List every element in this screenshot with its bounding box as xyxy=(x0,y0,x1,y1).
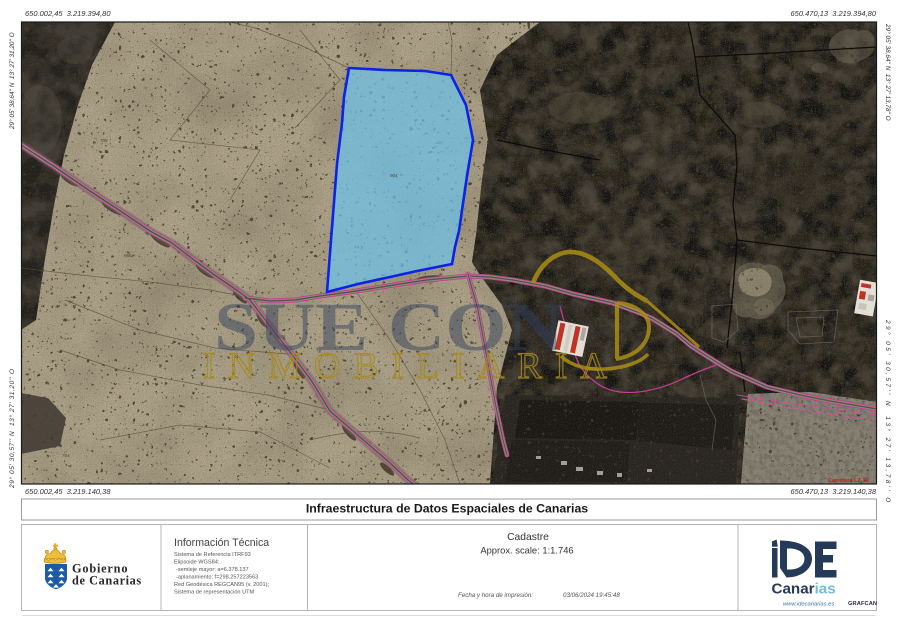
svg-text:706: 706 xyxy=(100,138,108,143)
svg-text:Cadastre: Cadastre xyxy=(507,532,549,543)
svg-text:29° 05' 30,57'' N 13° 27' 13,: 29° 05' 30,57'' N 13° 27' 13,78'' O xyxy=(884,319,892,505)
svg-text:Sistema de representación UTM: Sistema de representación UTM xyxy=(174,590,255,596)
svg-text:Fecha y hora de impresión:: Fecha y hora de impresión: xyxy=(458,592,533,599)
svg-text:GRAFCAN: GRAFCAN xyxy=(848,601,877,607)
svg-text:650.470,13 3.219.394,80: 650.470,13 3.219.394,80 xyxy=(791,9,877,18)
svg-text:-semieje mayor: a=6.378.137: -semieje mayor: a=6.378.137 xyxy=(176,567,249,573)
svg-text:Red Geodésica REGCAN95 (v. 200: Red Geodésica REGCAN95 (v. 2001); xyxy=(174,582,269,588)
svg-text:650.002,45 3.219.140,38: 650.002,45 3.219.140,38 xyxy=(25,487,111,496)
svg-text:SUE CON: SUE CON xyxy=(214,289,564,365)
svg-text:Canarias: Canarias xyxy=(772,581,836,598)
svg-text:www.idecanarias.es: www.idecanarias.es xyxy=(783,602,834,608)
svg-text:Infraestructura de Datos Espac: Infraestructura de Datos Espaciales de C… xyxy=(306,502,588,516)
svg-text:904: 904 xyxy=(390,173,398,178)
svg-text:650.470,13 3.219.140,38: 650.470,13 3.219.140,38 xyxy=(791,487,877,496)
svg-text:Sistema de Referencia ITRF93: Sistema de Referencia ITRF93 xyxy=(174,552,251,558)
svg-text:704: 704 xyxy=(62,453,70,458)
svg-text:650.002,45 3.219.394,80: 650.002,45 3.219.394,80 xyxy=(25,9,111,18)
svg-text:-aplanamiento: f=298,257223563: -aplanamiento: f=298,257223563 xyxy=(176,575,258,581)
svg-text:Carretera LZ-10: Carretera LZ-10 xyxy=(828,478,869,484)
svg-text:Información Técnica: Información Técnica xyxy=(174,537,269,549)
svg-text:29° 05' 38,64'' N 13° 27' 31,: 29° 05' 38,64'' N 13° 27' 31,20'' O xyxy=(8,32,16,130)
svg-text:956: 956 xyxy=(124,253,132,258)
svg-text:29° 05' 30,57'' N 13° 27' 31,: 29° 05' 30,57'' N 13° 27' 31,20'' O xyxy=(8,368,16,489)
svg-text:03/06/2024 19:45:48: 03/06/2024 19:45:48 xyxy=(563,592,620,599)
svg-text:Elipsoide WGS84:: Elipsoide WGS84: xyxy=(174,560,220,566)
svg-text:29° 05' 38,64'' N 13° 27' 13,: 29° 05' 38,64'' N 13° 27' 13,78'' O xyxy=(884,23,892,121)
svg-text:Approx. scale: 1:1.746: Approx. scale: 1:1.746 xyxy=(480,545,573,556)
svg-text:de Canarias: de Canarias xyxy=(72,574,142,588)
